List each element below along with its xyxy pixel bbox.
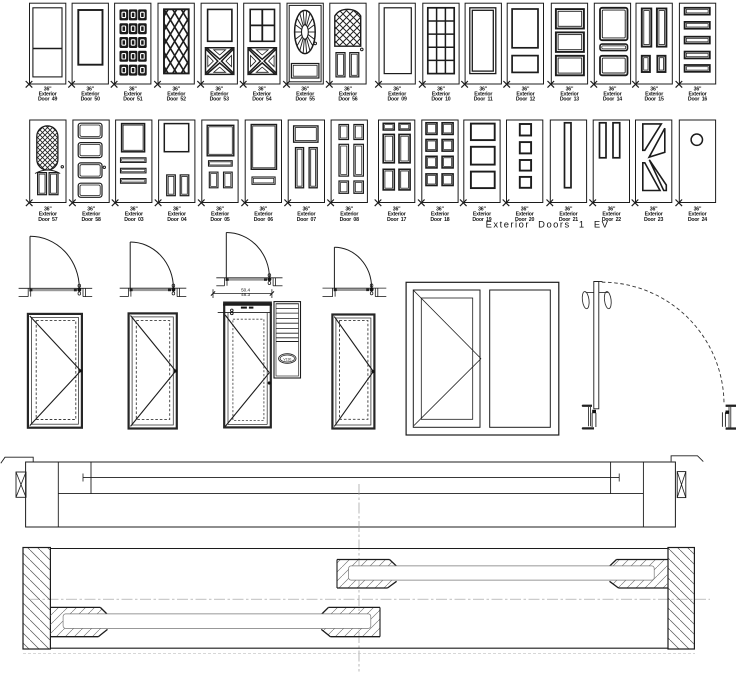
svg-text:Door 13: Door 13 [560,97,579,103]
svg-text:Door 53: Door 53 [210,97,229,103]
svg-text:Door 56: Door 56 [338,97,357,103]
svg-text:48.3: 48.3 [241,292,250,297]
svg-text:Door 15: Door 15 [645,97,664,103]
svg-text:Door 50: Door 50 [81,97,100,103]
svg-text:Door 49: Door 49 [38,97,57,103]
svg-text:Door 07: Door 07 [297,217,316,223]
svg-text:Door 16: Door 16 [688,97,707,103]
svg-text:Door 51: Door 51 [123,97,142,103]
svg-text:Door 03: Door 03 [124,217,143,223]
svg-text:Door 24: Door 24 [688,217,707,223]
svg-text:Door 06: Door 06 [254,217,273,223]
svg-text:Exterior Doors 1 EV: Exterior Doors 1 EV [486,218,610,229]
svg-text:Door 23: Door 23 [644,217,663,223]
svg-text:Door 12: Door 12 [516,97,535,103]
svg-text:Door 57: Door 57 [38,217,57,223]
svg-text:Door 10: Door 10 [431,97,450,103]
svg-text:Door 08: Door 08 [340,217,359,223]
svg-text:Door 14: Door 14 [603,97,622,103]
svg-text:Door 55: Door 55 [296,97,315,103]
svg-text:Door 17: Door 17 [387,217,406,223]
svg-text:Door 54: Door 54 [252,97,271,103]
svg-text:Door 11: Door 11 [474,97,493,103]
svg-text:Door 18: Door 18 [430,217,449,223]
svg-text:Door 09: Door 09 [388,97,407,103]
svg-text:Door 58: Door 58 [82,217,101,223]
svg-text:V130: V130 [283,357,291,361]
svg-text:Door 52: Door 52 [167,97,186,103]
svg-text:Door 04: Door 04 [167,217,186,223]
svg-text:Door 05: Door 05 [210,217,229,223]
